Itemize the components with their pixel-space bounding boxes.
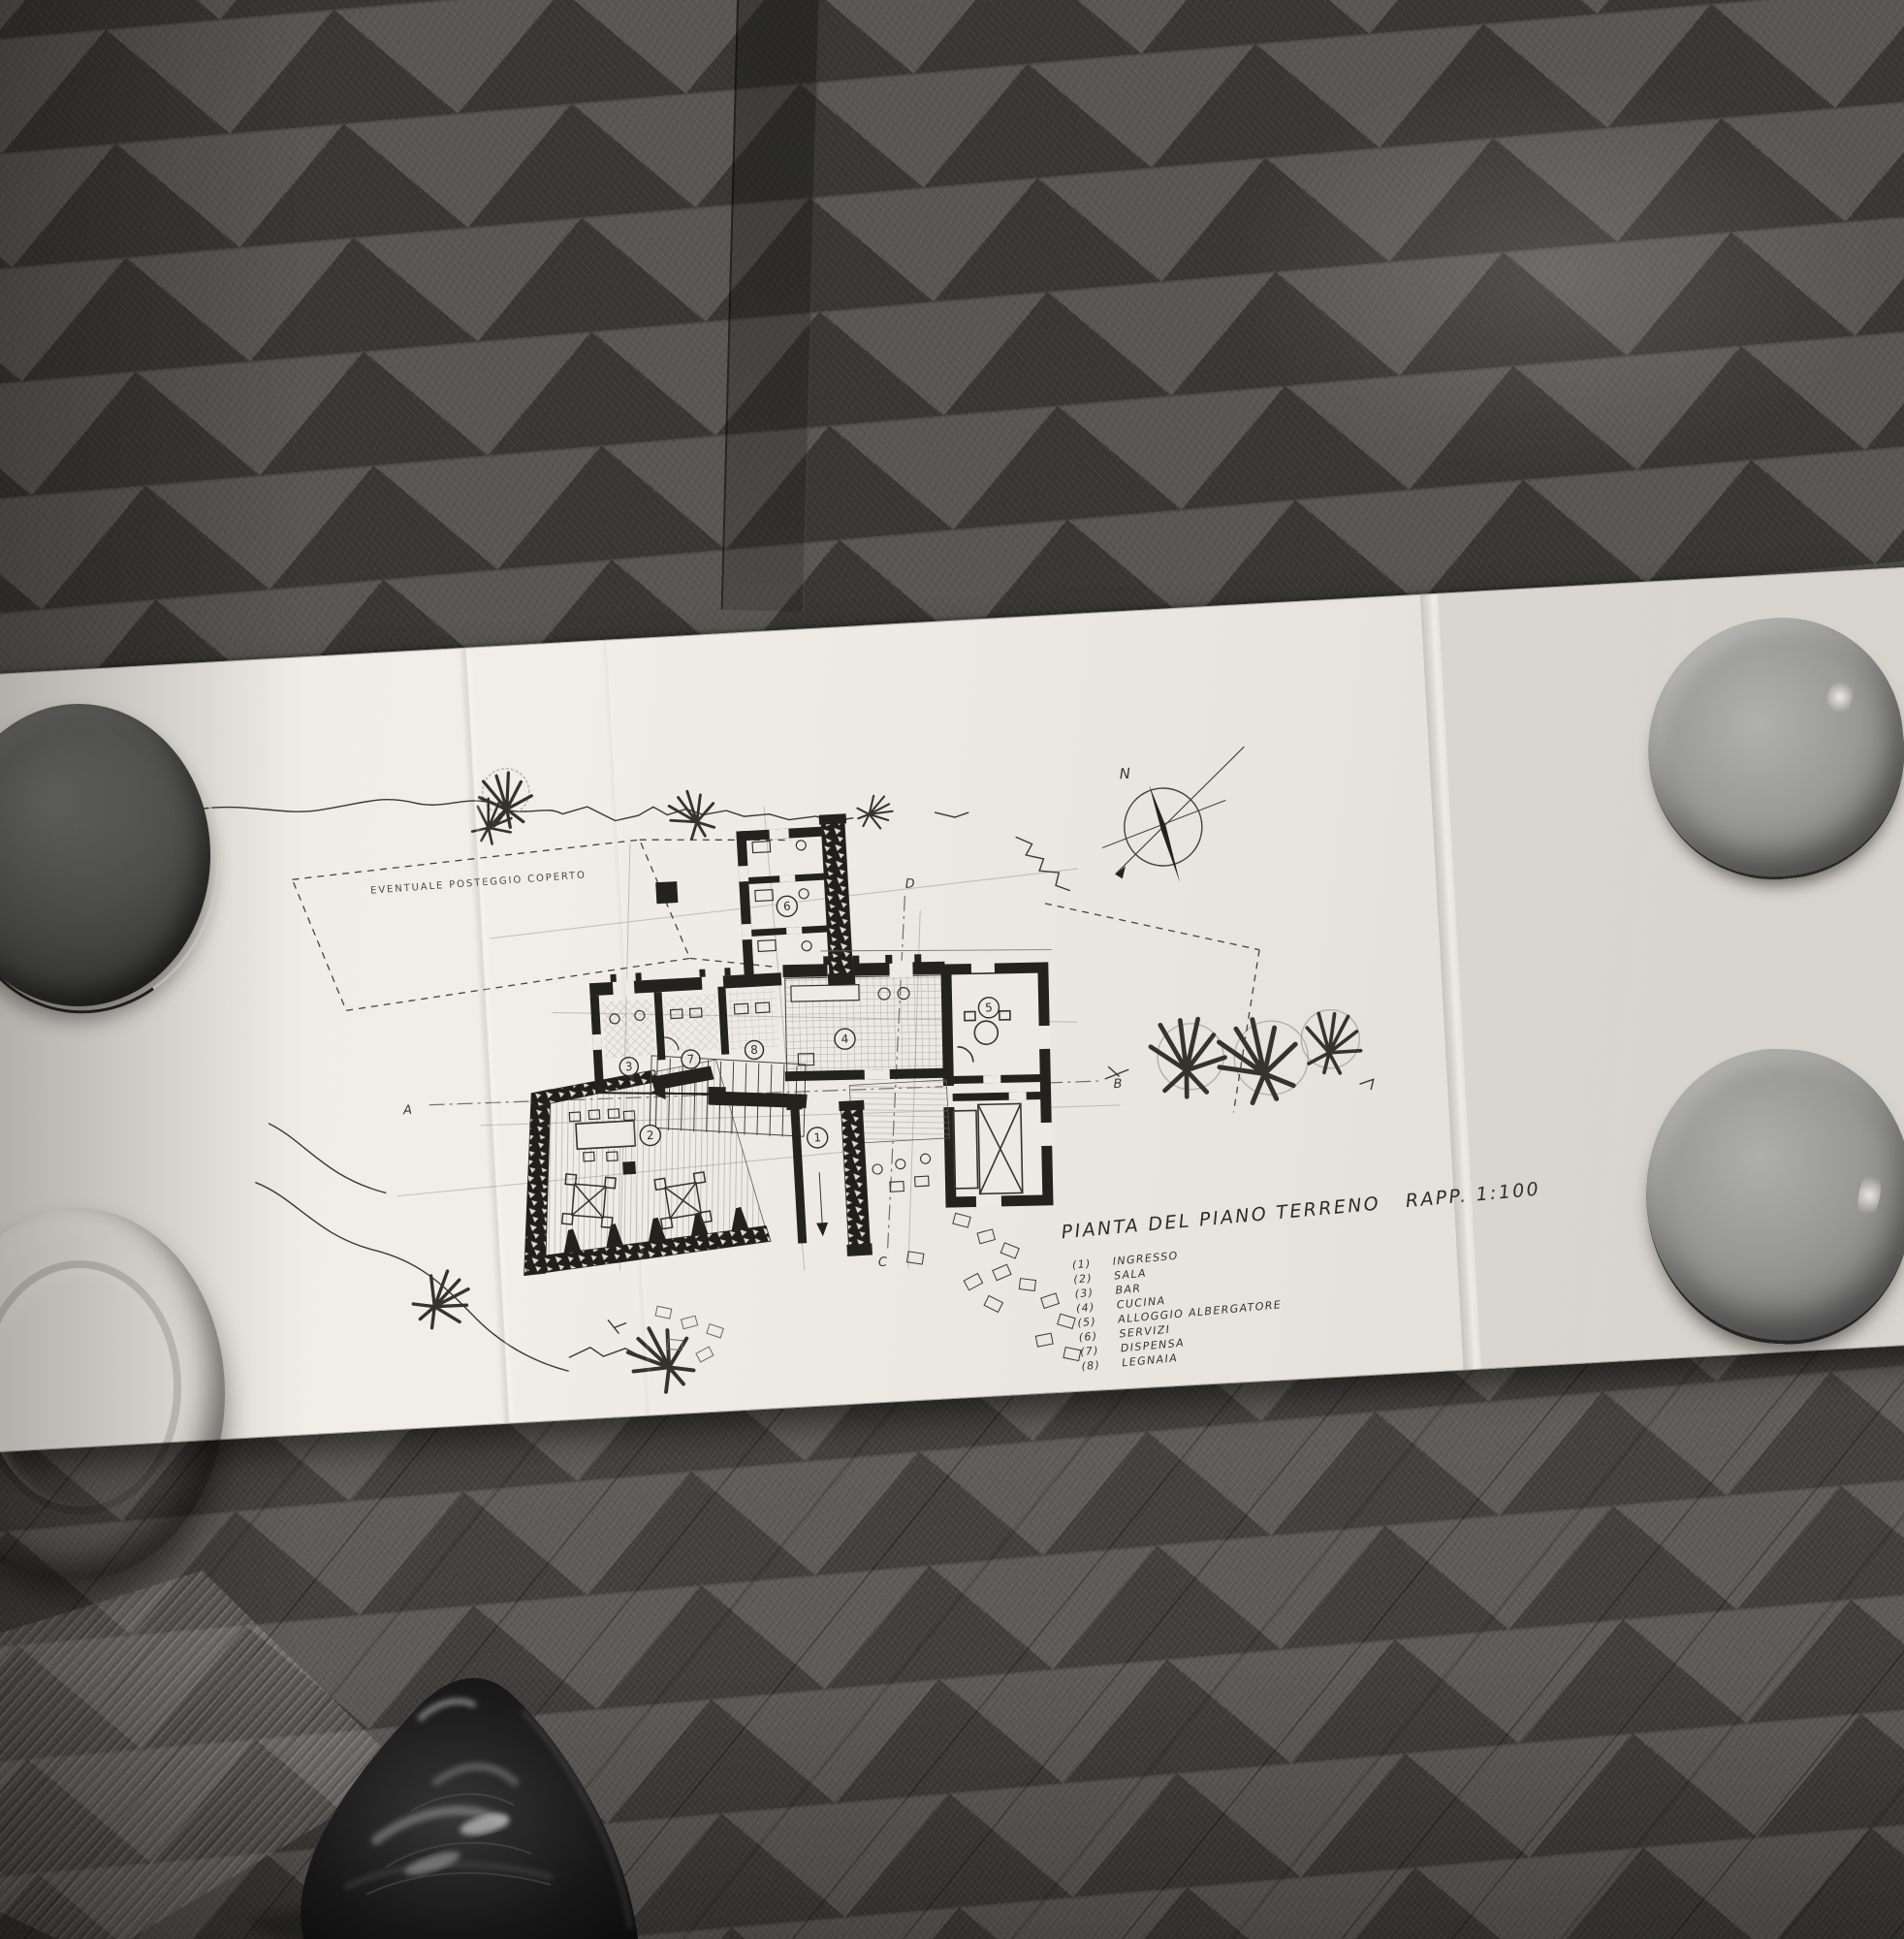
- section-marker-a: A: [402, 1103, 413, 1119]
- room-number-5: 5: [985, 1001, 993, 1014]
- room-number-1: 1: [813, 1130, 821, 1144]
- kitchen: [782, 954, 950, 1082]
- drawing-paper: A B C D: [0, 566, 1904, 1453]
- photo-scene: A B C D: [0, 0, 1904, 1939]
- section-marker-d: D: [904, 876, 915, 892]
- room-number-8: 8: [750, 1043, 758, 1057]
- section-marker-b: B: [1113, 1077, 1123, 1092]
- floor-board-seam: [721, 0, 821, 612]
- room-number-2: 2: [647, 1128, 654, 1142]
- entrance-corridor: [790, 1097, 873, 1259]
- leather-shoe: [231, 1635, 696, 1939]
- compass-rose-icon: N: [1097, 747, 1252, 886]
- room-number-6: 6: [783, 900, 791, 913]
- innkeeper-wing: [940, 958, 1054, 1208]
- floor-light-sheen: [1115, 0, 1904, 543]
- room-number-7: 7: [686, 1052, 694, 1065]
- section-marker-c: C: [878, 1256, 889, 1271]
- legend: (1)INGRESSO (2)SALA (3)BAR (4)CUCINA (5)…: [1071, 1240, 1285, 1373]
- svg-text:(5)ALLOGGIO ALBERGATORE: (5)ALLOGGIO ALBERGATORE: [1077, 1298, 1283, 1329]
- compass-north-label: N: [1119, 765, 1130, 783]
- room-number-4: 4: [841, 1032, 848, 1045]
